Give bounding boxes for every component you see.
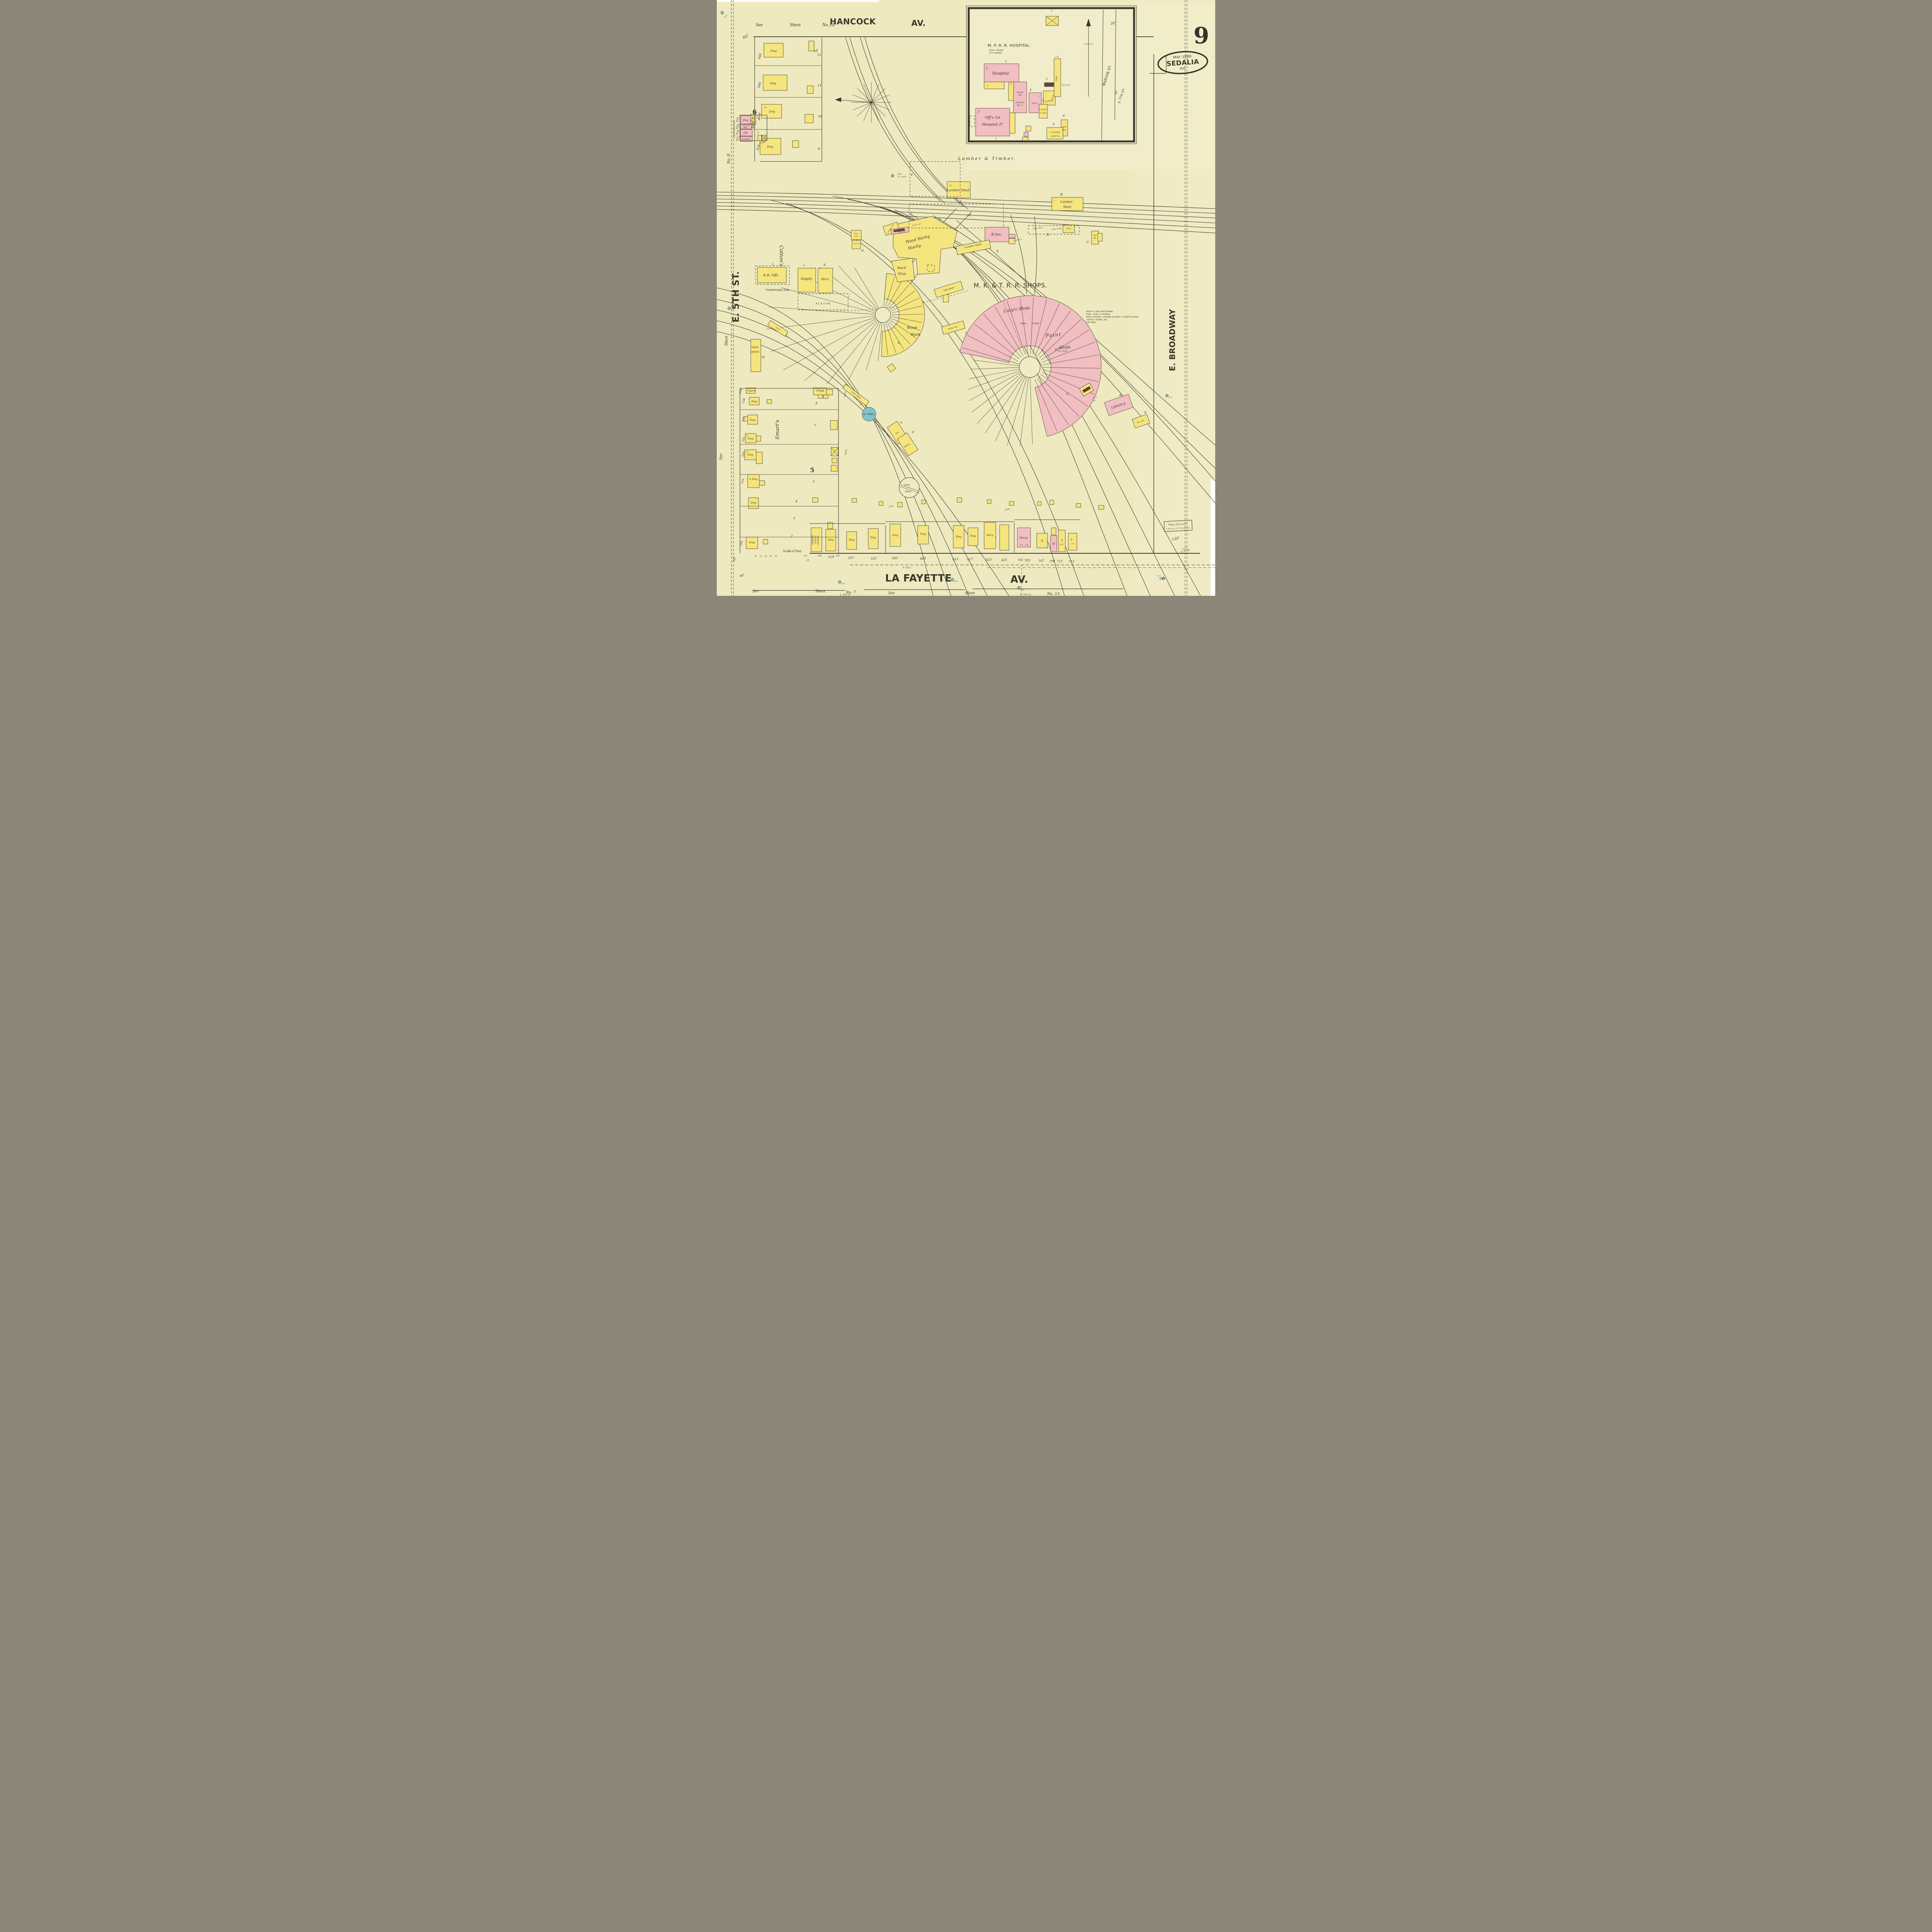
label-b6-lunch: Lunch bbox=[742, 138, 750, 141]
sanborn-map-sheet: SeeSheetNo.10.HANCOCKAV.60'16'No, 8.Shee… bbox=[717, 0, 1215, 596]
label-br-dwg-519: Dwg bbox=[828, 538, 834, 541]
label-in-2c: 2 bbox=[1046, 78, 1048, 81]
label-in-7b: 7 bbox=[1051, 10, 1053, 13]
dh-dot-1 bbox=[721, 12, 724, 14]
label-cottons: Cotton's bbox=[778, 245, 784, 267]
label-in-coal-1x: 1 X bbox=[1055, 56, 1059, 58]
br-outshed-1 bbox=[852, 498, 857, 502]
label-margin-sheet: Sheet bbox=[723, 335, 729, 346]
inset-offices-strip bbox=[1010, 113, 1015, 133]
label-smarts: Smart's bbox=[775, 420, 781, 439]
label-sc-40: 40 bbox=[760, 555, 762, 558]
label-lafayette-av: AV. bbox=[1010, 574, 1028, 585]
label-hyd-1a: HYD. bbox=[898, 173, 902, 175]
label-in-offs-2: Hospital 2° bbox=[982, 122, 1003, 127]
label-sh-hos-k: Ho's. bbox=[821, 277, 830, 281]
label-b5-lot-4: 4 bbox=[795, 500, 797, 503]
label-church-2: LUTH'N bbox=[815, 536, 817, 544]
inset-offices-hospital bbox=[976, 108, 1010, 136]
label-sc-150: 150 bbox=[836, 555, 840, 557]
label-b5-lot-3: 3 bbox=[793, 517, 795, 520]
br-outshed-7 bbox=[1009, 502, 1014, 505]
b5-shed-e2 bbox=[831, 465, 837, 471]
label-b6-vac-no-opg: 1 NO OPG bbox=[742, 125, 750, 127]
label-sc-50b: 50 bbox=[804, 555, 807, 557]
label-sh-ww-2: Work. bbox=[911, 333, 922, 337]
label-margin-no8: No, 8. bbox=[726, 153, 731, 164]
label-sh-e: E. bbox=[996, 250, 1000, 253]
br-outshed-11 bbox=[1099, 505, 1104, 509]
label-b6-dwg-640: Dwg bbox=[770, 82, 777, 85]
label-lu-shed-a: Lumber Shed. bbox=[947, 189, 971, 192]
label-sh-m: M. bbox=[761, 356, 765, 359]
label-b6-dwg-632: Dwg bbox=[743, 119, 749, 122]
label-sh-s: S. bbox=[1144, 411, 1147, 414]
label-dh-3: D.H. bbox=[841, 583, 845, 585]
label-in-irch45: IR.CH.45' bbox=[1062, 84, 1071, 86]
sheet-number: 9 bbox=[1194, 22, 1209, 49]
label-br-num-625: 625 bbox=[1001, 558, 1007, 562]
label-sh-q1: Q bbox=[965, 332, 968, 335]
label-br-num-711: 711 bbox=[1057, 559, 1063, 563]
label-sc-10: 10 bbox=[775, 555, 777, 558]
label-b6-off: Off. bbox=[743, 131, 748, 134]
label-lu-a: A. bbox=[959, 200, 963, 203]
b5-shed-530a bbox=[818, 395, 823, 398]
b5-wing-520 bbox=[756, 452, 762, 464]
label-br-dwg-521: Dwg bbox=[849, 538, 855, 541]
stamp-state: MO. bbox=[1180, 66, 1186, 70]
label-b6-lot-9: 9 bbox=[818, 147, 820, 151]
label-sh-d: D. bbox=[1046, 233, 1050, 236]
label-mkt-shops: M. K. & T. R. R. SHOPS. bbox=[974, 282, 1048, 289]
label-br-num-623: 623 bbox=[986, 558, 992, 561]
label-sh-mach-2: Shop. bbox=[898, 272, 906, 276]
label-b5-dwg-7: Dwg bbox=[749, 541, 755, 544]
label-sh-o: O. bbox=[900, 421, 903, 424]
label-b6-lot-11: 11 bbox=[818, 84, 821, 87]
label-note-4: LIGHTS: SIGNAL OIL. bbox=[1086, 319, 1108, 321]
label-sh-h: H. bbox=[861, 249, 864, 252]
label-br-dwg-701: Dw'gs bbox=[1019, 536, 1028, 539]
label-sc-30: 30 bbox=[765, 555, 767, 558]
label-sheet-b2: Sheet bbox=[965, 590, 975, 595]
label-in-colored-1: 1 COLORED bbox=[1050, 131, 1060, 133]
label-lafayette: LA FAYETTE bbox=[885, 573, 952, 584]
label-sc-20: 20 bbox=[770, 555, 772, 558]
label-hancock: HANCOCK bbox=[830, 17, 876, 26]
b5-shed-530b bbox=[823, 395, 828, 398]
hyd-dot-yard bbox=[891, 175, 894, 177]
label-note-2: FUEL: COAL & SHAVGS. bbox=[1086, 313, 1111, 316]
label-b5-dwg-6: Dwg bbox=[750, 501, 757, 504]
label-sh-dry-1: DRY bbox=[1093, 235, 1097, 236]
label-hyd-1b: 25' HOSE. bbox=[898, 176, 907, 178]
b6-shed-640 bbox=[807, 86, 813, 94]
label-see-sheet-10-sheet: Sheet bbox=[790, 22, 801, 27]
inset-shed-1 bbox=[1026, 126, 1031, 131]
label-b5-dwg-3h: 1½ bbox=[745, 434, 748, 437]
label-br-m-703: 2 X bbox=[1025, 544, 1028, 546]
label-dh-2: D.H. bbox=[731, 308, 735, 310]
label-in-offs-1: Off's 1st bbox=[985, 116, 1000, 120]
b6-shed-646 bbox=[809, 41, 814, 51]
label-e-6th-st: E. 6TH ST. bbox=[840, 594, 851, 596]
label-in-6: 6 bbox=[1063, 114, 1065, 117]
label-br-num-601: 601 bbox=[892, 556, 898, 560]
label-in-hog-2: PEN. bbox=[1062, 129, 1066, 131]
b6-shed-636 bbox=[805, 114, 813, 123]
label-sh-l: L. bbox=[786, 334, 789, 337]
label-sh-r1: R. bbox=[897, 342, 901, 345]
label-margin-see: See bbox=[718, 453, 723, 460]
label-in-hog-1: HOG bbox=[1063, 126, 1067, 128]
label-church-1: GERMAN bbox=[812, 535, 814, 544]
label-br-dwg-525: Dwg bbox=[870, 536, 876, 539]
b5-shed-e1 bbox=[832, 458, 837, 463]
label-in-4: 4 bbox=[1029, 88, 1031, 92]
label-lu-shed-b-1: Lumber bbox=[1060, 200, 1073, 204]
label-in-water: CITY WATER. bbox=[989, 52, 1003, 54]
label-b5-dwg-5: 2 Dwg bbox=[749, 478, 757, 481]
label-in-1c: 1 bbox=[1048, 17, 1049, 19]
label-in-dining-1: DINING bbox=[1017, 92, 1024, 94]
label-sh-pshop-3: CARP'R bbox=[853, 243, 859, 245]
dh-dot-3 bbox=[838, 581, 841, 583]
furnace-pink bbox=[1009, 234, 1015, 238]
label-dh-5: D.H. bbox=[1020, 589, 1025, 591]
label-br-num-521: 521 bbox=[848, 556, 854, 560]
label-dim-60-br: 60' bbox=[1160, 577, 1164, 580]
label-scale-of-feet: Scale of Feet. bbox=[783, 549, 802, 553]
label-lu-shed-b-2: Shed. bbox=[1063, 205, 1072, 209]
label-dh-7: D.H. bbox=[1157, 575, 1162, 577]
label-dh-4: D.H. bbox=[954, 580, 958, 583]
label-water-pipe: 4" W.P. bbox=[903, 567, 911, 569]
b5-wing-524 bbox=[756, 436, 761, 441]
label-b5-dwg-1: Dwg bbox=[751, 400, 757, 403]
label-b5-dwgs: Dwgs bbox=[816, 389, 824, 392]
label-e-5th-st: E. 5TH ST. bbox=[731, 271, 741, 323]
label-br-num-609: 609 bbox=[920, 556, 926, 560]
label-sh-r2: R. bbox=[1119, 394, 1123, 397]
label-block-6: 6 bbox=[752, 108, 757, 116]
label-see-b1: See bbox=[752, 588, 759, 594]
label-b6-dwg-634: Dwg bbox=[767, 145, 774, 148]
br-outshed-5 bbox=[957, 498, 962, 502]
label-sh-bsm: B.Sm. bbox=[991, 233, 1002, 237]
br-dwg-625 bbox=[1000, 525, 1009, 550]
b5-shed-e3 bbox=[813, 498, 818, 502]
label-turn-1: TURN bbox=[903, 484, 910, 486]
label-b6-lot-10: 10 bbox=[818, 115, 822, 118]
label-br-s-623: S bbox=[995, 536, 997, 539]
label-br-dwg-707: D bbox=[1041, 539, 1043, 543]
label-sh-k: K. bbox=[823, 264, 826, 267]
br-dwg-713 bbox=[1068, 533, 1077, 550]
inset-colored-hospital bbox=[1047, 128, 1063, 139]
label-br-num-617: 617 bbox=[967, 557, 974, 561]
label-br-num-519: 519 bbox=[828, 555, 834, 559]
dry-house-2 bbox=[1098, 233, 1102, 241]
br-shed-519 bbox=[828, 522, 833, 529]
label-in-3: 3 bbox=[1005, 60, 1007, 63]
label-b6-vac: VAC. bbox=[743, 127, 748, 129]
label-b5-lot-5: 5 bbox=[813, 480, 815, 483]
label-br-num-707: 707 bbox=[1038, 559, 1045, 563]
label-in-5: 5 bbox=[1042, 99, 1044, 102]
label-br-dwg-615: Dwg bbox=[956, 535, 962, 538]
label-b6-dwg-646: Dwg bbox=[770, 49, 777, 53]
label-br-num-709: 709 bbox=[1049, 559, 1055, 563]
paint-shop-carp-1 bbox=[851, 230, 861, 240]
dh-dot-6 bbox=[1166, 395, 1168, 397]
label-lu-dim-10: 10' bbox=[967, 214, 971, 217]
label-in-dining-2: RM. bbox=[1018, 94, 1022, 97]
label-church-3: CHURCH. bbox=[817, 535, 820, 545]
label-hancock-av: AV. bbox=[911, 19, 926, 28]
label-sh-supply: Supply bbox=[801, 277, 812, 281]
label-b5-lot-8: 8 bbox=[815, 401, 817, 405]
label-b5-lot-2: 2 bbox=[790, 534, 793, 538]
label-br-num-615: 615 bbox=[952, 557, 959, 561]
label-br-m-711: 18.X bbox=[1060, 544, 1064, 546]
br-outshed-4 bbox=[922, 500, 925, 504]
label-br-num-525: 525 bbox=[871, 556, 877, 560]
label-b6-dwg-636-h: 1½ bbox=[764, 106, 767, 109]
scan-edge-top bbox=[717, 0, 879, 2]
label-sh-f: F. bbox=[972, 251, 975, 254]
label-sc-100: 100 bbox=[818, 555, 822, 557]
b6-shed-622a bbox=[758, 135, 762, 141]
label-sh-pass-2: DEPOT. bbox=[750, 350, 760, 354]
label-e-broadway: E. BROADWAY bbox=[1168, 309, 1177, 371]
label-block-5: 5 bbox=[810, 466, 814, 474]
br-outshed-9 bbox=[1050, 500, 1054, 505]
b5-wing-516 bbox=[759, 481, 765, 485]
inset-shed-2 bbox=[1024, 132, 1028, 136]
shed-below-machy bbox=[943, 294, 949, 302]
br-outshed-2 bbox=[879, 502, 883, 505]
label-e-7th-st-b: E. 7TH ST. bbox=[1020, 594, 1031, 596]
label-sh-hyd2b: 100' HOSE. bbox=[1058, 350, 1068, 352]
br-outshed-10 bbox=[1076, 503, 1081, 507]
turntable-west bbox=[875, 307, 891, 323]
label-in-buggy-1: 1 BUGGY bbox=[1039, 109, 1048, 111]
label-in-7a: 7 bbox=[995, 138, 997, 141]
label-br-dwg-711: 9 bbox=[1061, 539, 1063, 542]
label-lu-b: B. bbox=[1060, 193, 1063, 196]
label-br-m-701: 2 X bbox=[1019, 544, 1023, 546]
label-in-kitchen: KITCHEN bbox=[1046, 84, 1053, 86]
label-in-buggy-2: X SHED bbox=[1040, 112, 1047, 114]
label-b6-dwg-634-h: 1½ bbox=[762, 140, 765, 143]
label-sh-ww-1: Wood bbox=[907, 326, 917, 330]
label-in-title: M. P. R. R. HOSPITAL. bbox=[988, 44, 1031, 48]
label-b6-dwg-636: Dwg bbox=[769, 110, 776, 113]
label-lu-b-1: 1 bbox=[1054, 200, 1055, 202]
label-br-m-713: 1½ bbox=[1071, 543, 1074, 545]
label-br-dwg-713: S bbox=[1071, 539, 1072, 541]
br-outshed-3 bbox=[898, 502, 902, 507]
b5-shed-528 bbox=[767, 400, 772, 403]
label-br-dwg-623: Dw'g bbox=[986, 534, 993, 537]
label-lu-a-h: 1½ bbox=[949, 184, 952, 187]
label-sh-n: N. bbox=[859, 403, 863, 406]
label-dh-6: D.H. bbox=[1168, 396, 1173, 399]
label-b5-dwg-4h: 1½ bbox=[745, 451, 748, 453]
br-shed-709 bbox=[1051, 528, 1056, 535]
label-br-num-713: 713 bbox=[1068, 560, 1075, 563]
label-sh-q2: Q bbox=[1066, 392, 1068, 395]
br-outshed-8 bbox=[1037, 502, 1041, 505]
label-in-smoking-2: RM. 2° bbox=[1017, 104, 1024, 107]
turntable-east bbox=[1019, 357, 1040, 378]
paper-tint-right bbox=[1134, 0, 1215, 596]
label-sh-p: P. bbox=[912, 431, 914, 434]
label-sh-dry-2: HO. bbox=[1094, 237, 1097, 239]
label-in-1b: 1 bbox=[1038, 95, 1039, 98]
label-lu-dim-5: 5' bbox=[910, 213, 912, 216]
label-sh-pass-1: PASS. bbox=[752, 346, 759, 349]
label-sh-pshop-1: PAINT bbox=[854, 233, 859, 235]
label-b6-lot-8: 8 bbox=[758, 117, 760, 121]
label-in-2b: 2 bbox=[1010, 82, 1012, 85]
label-sheet-b1: Sheet bbox=[815, 588, 826, 594]
label-b5-dwg-2: Dwg bbox=[750, 418, 756, 422]
b5-shed-526b bbox=[830, 420, 837, 430]
label-in-smoking-1: SMOKING bbox=[1015, 102, 1024, 104]
dh-dot-2 bbox=[728, 307, 731, 310]
label-sh-steam2: STEAM. bbox=[1032, 323, 1040, 325]
label-b5-cigars: Cigars bbox=[747, 389, 755, 392]
label-no13: No. 13. bbox=[1046, 591, 1060, 596]
label-br-num-701: 701 bbox=[1017, 558, 1024, 562]
label-in-8: 8 bbox=[1053, 123, 1055, 126]
label-in-2d: 2 bbox=[977, 110, 980, 113]
label-addn: Add'n bbox=[750, 117, 755, 129]
label-note-5: 185 MEN. bbox=[1086, 321, 1096, 324]
b6-shed-634 bbox=[793, 141, 799, 148]
label-sh-wtank: W. TANK. bbox=[863, 413, 875, 416]
label-in-coal: COAL bbox=[1056, 76, 1058, 82]
label-note-1: NIGHT & DAY WATCHMAN. bbox=[1086, 311, 1114, 313]
label-in-colored-2: HOSPITAL bbox=[1051, 135, 1060, 137]
label-in-heat: HEAT: STEAM. bbox=[989, 49, 1004, 52]
label-br-dwg-617: Dwg bbox=[970, 534, 976, 537]
label-b5-dwg-3: Dwg bbox=[748, 437, 754, 440]
inset-dining bbox=[1014, 82, 1027, 113]
label-see-sheet-10-see: See bbox=[756, 22, 763, 27]
passenger-depot bbox=[751, 339, 761, 372]
label-sh-g: G. bbox=[939, 218, 942, 221]
b5-shed-502 bbox=[763, 539, 768, 544]
label-turn-2: TABLE. bbox=[904, 491, 912, 493]
label-br-num-703: 703 bbox=[1024, 558, 1031, 562]
label-calhoun-ho: CALHOUN HO. bbox=[733, 120, 736, 138]
label-sh-kr-offs: K.R. Offs. bbox=[763, 274, 779, 277]
b5-dwg-516 bbox=[748, 474, 759, 488]
label-br-dwg-601: Dwg bbox=[892, 534, 898, 537]
label-b5-dwg-4: Dwg bbox=[747, 453, 753, 456]
label-sh-heat2: HEAT: bbox=[1020, 323, 1027, 325]
map-canvas: SeeSheetNo.10.HANCOCKAV.60'16'No, 8.Shee… bbox=[717, 0, 1215, 596]
b5-dwgs-530b bbox=[827, 389, 833, 395]
scan-edge-right bbox=[1211, 479, 1215, 596]
paint-shop-carp-2 bbox=[852, 240, 861, 249]
label-b5-lot-1: 1 bbox=[788, 549, 790, 553]
label-platfm: P L A T F'M. bbox=[816, 303, 831, 305]
label-sh-hyd2a: HYD. bbox=[1058, 347, 1062, 349]
label-in-2a: 2 bbox=[985, 66, 988, 70]
br-outshed-6 bbox=[987, 500, 991, 503]
label-sh-pshop-2: SHOP bbox=[854, 235, 859, 237]
label-in-hospital: Hospital. bbox=[992, 71, 1010, 76]
label-sh-i: I. bbox=[772, 263, 774, 266]
inset-buggy-shed bbox=[1039, 104, 1048, 118]
label-b6-lot-12: 12 bbox=[817, 53, 821, 57]
label-thompson-ave: THOMPSON AVE. bbox=[765, 289, 790, 292]
label-lu-dim-4: 4' bbox=[910, 173, 913, 177]
label-sc-50a: 50 bbox=[755, 555, 757, 558]
label-lumber-timber: Lumber & Timber. bbox=[958, 156, 1017, 161]
label-br-dwg-609: Dwg bbox=[920, 532, 926, 536]
label-sh-mach-1: Mach bbox=[897, 266, 906, 270]
label-in-no-expos: NO EXPOS. ANY SIDE. bbox=[1020, 141, 1048, 143]
label-in-1a: 1 bbox=[987, 85, 988, 87]
label-note-3: HEAT: STOVES. (STEAM IN PAINT & CARP'R S… bbox=[1086, 316, 1139, 318]
label-br-dwg-709: W bbox=[1052, 543, 1055, 546]
label-in-kitch: KITCH. bbox=[1032, 102, 1038, 105]
label-see-b2: See bbox=[888, 590, 895, 595]
